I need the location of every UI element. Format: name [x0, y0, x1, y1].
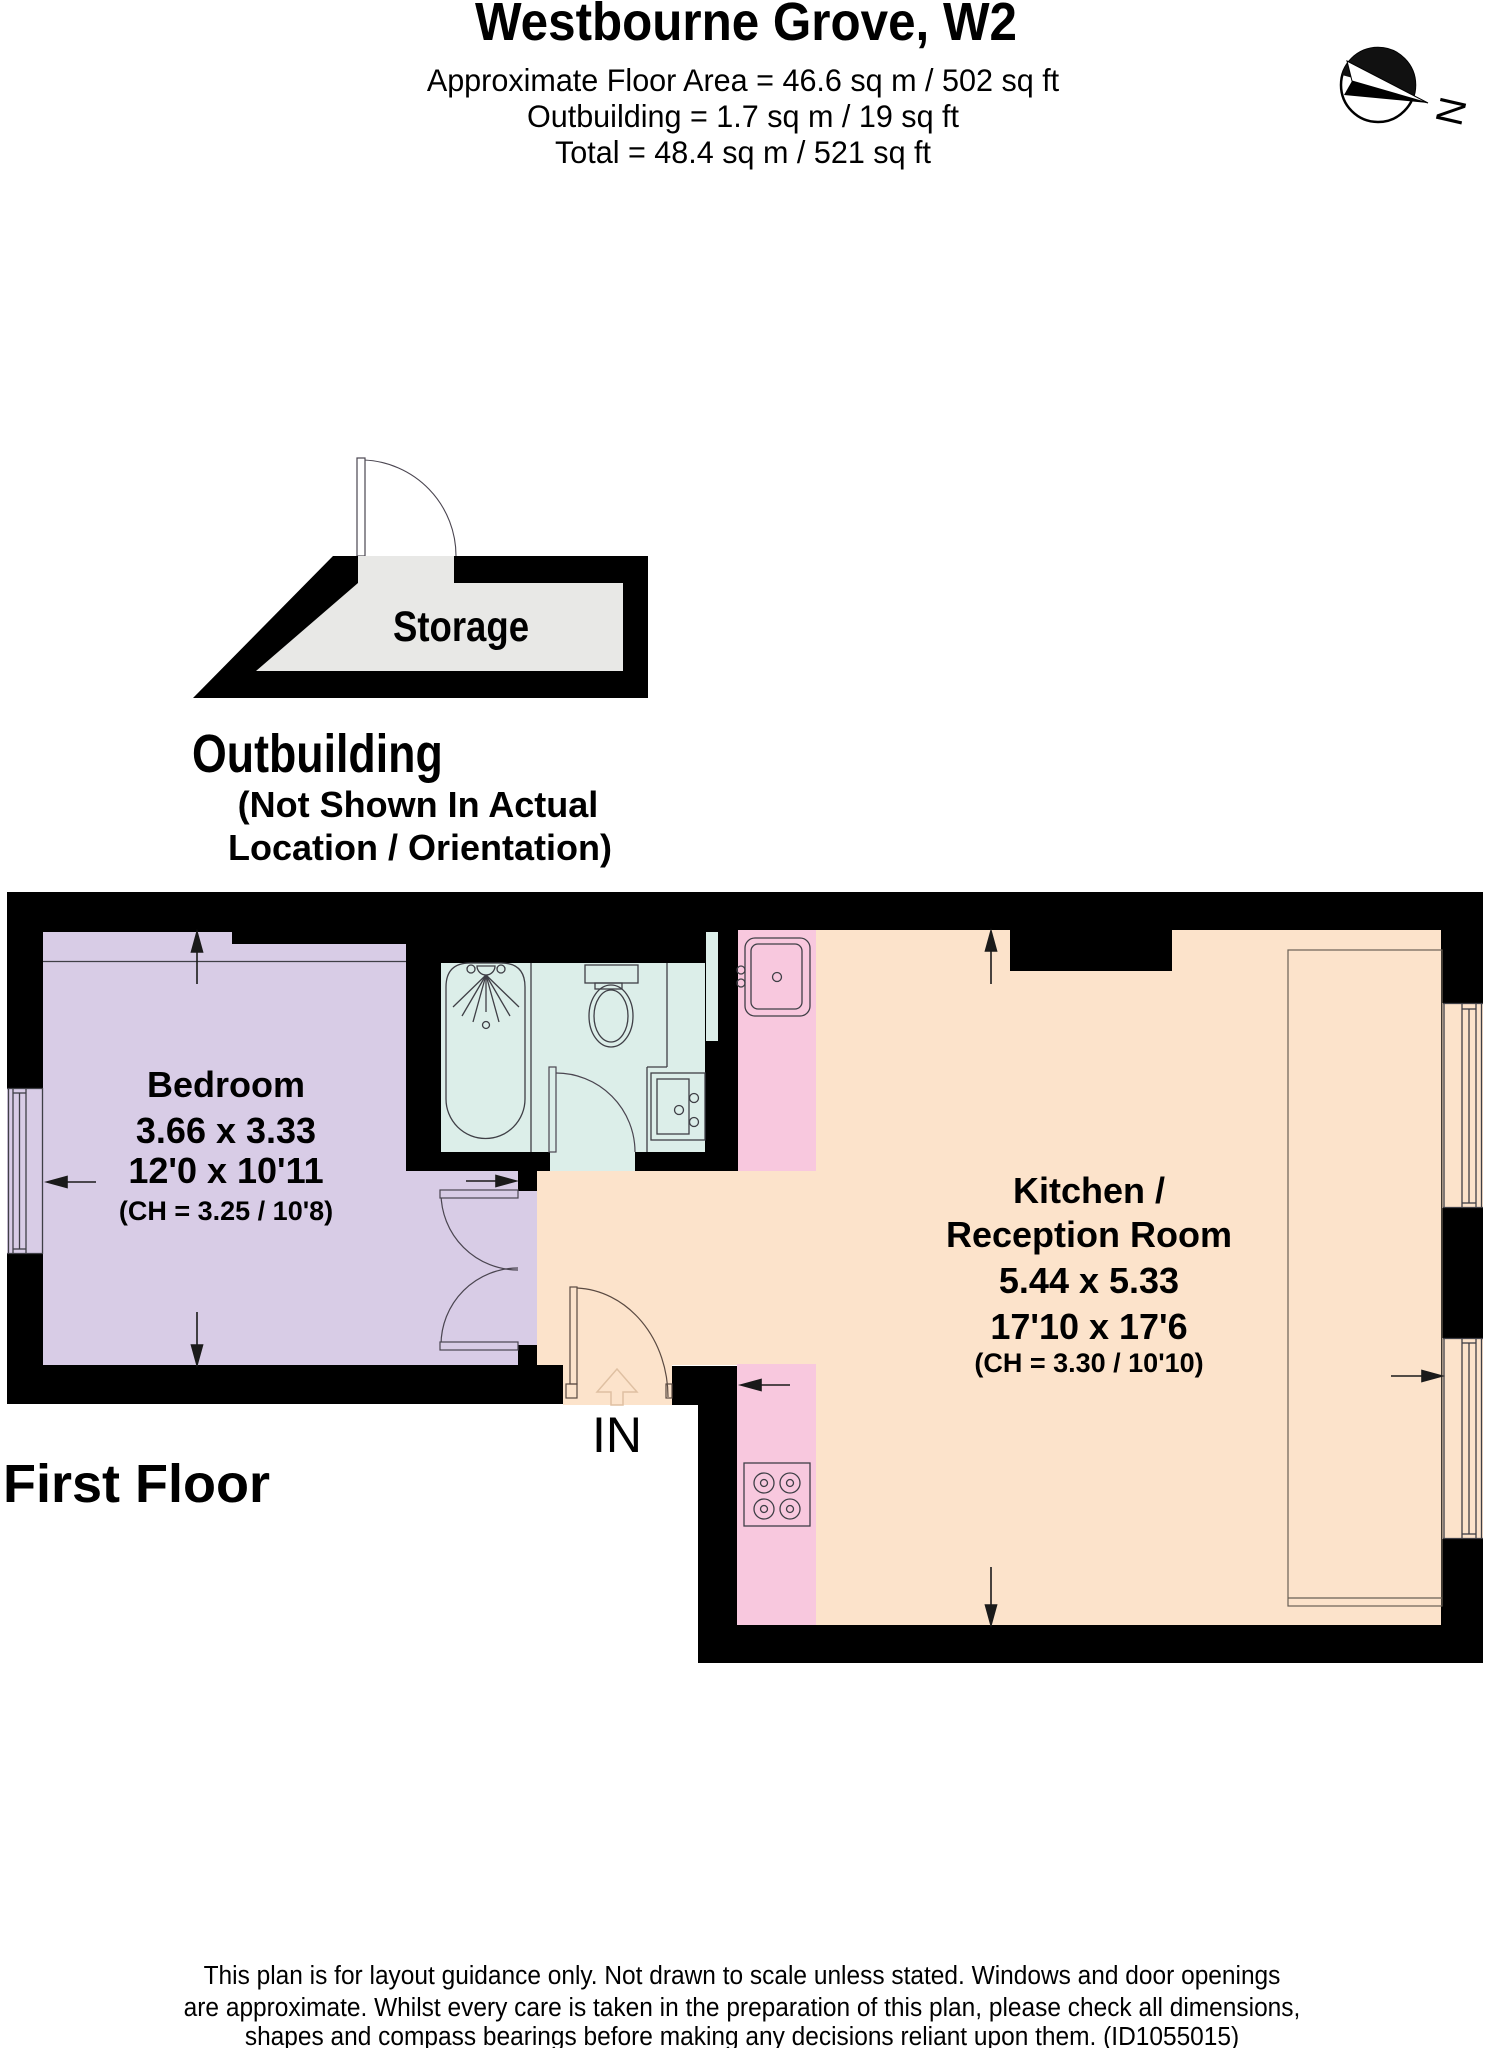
- svg-text:(CH = 3.25 / 10'8): (CH = 3.25 / 10'8): [119, 1196, 333, 1226]
- svg-text:Outbuilding: Outbuilding: [192, 723, 443, 784]
- svg-text:12'0 x 10'11: 12'0 x 10'11: [128, 1150, 323, 1191]
- svg-text:are approximate. Whilst every: are approximate. Whilst every care is ta…: [184, 1994, 1301, 2023]
- svg-text:shapes and compass bearings be: shapes and compass bearings before makin…: [245, 2023, 1239, 2048]
- svg-text:Outbuilding = 1.7 sq m / 19 sq: Outbuilding = 1.7 sq m / 19 sq ft: [527, 99, 959, 135]
- svg-text:Reception Room: Reception Room: [946, 1214, 1232, 1255]
- svg-text:Bedroom: Bedroom: [147, 1064, 305, 1105]
- svg-text:(Not Shown In Actual: (Not Shown In Actual: [238, 784, 599, 825]
- svg-text:Storage: Storage: [393, 603, 529, 650]
- svg-text:5.44 x 5.33: 5.44 x 5.33: [999, 1260, 1179, 1301]
- svg-text:Kitchen /: Kitchen /: [1013, 1170, 1165, 1211]
- svg-text:First Floor: First Floor: [3, 1454, 270, 1514]
- svg-text:(CH = 3.30 / 10'10): (CH = 3.30 / 10'10): [974, 1348, 1203, 1378]
- svg-text:This plan is for layout guidan: This plan is for layout guidance only. N…: [204, 1962, 1281, 1991]
- svg-text:IN: IN: [592, 1407, 642, 1463]
- svg-text:Location / Orientation): Location / Orientation): [228, 827, 612, 868]
- svg-text:Total = 48.4 sq m / 521 sq ft: Total = 48.4 sq m / 521 sq ft: [555, 135, 931, 171]
- svg-text:17'10 x 17'6: 17'10 x 17'6: [990, 1306, 1187, 1347]
- svg-text:Approximate Floor Area = 46.6: Approximate Floor Area = 46.6 sq m / 502…: [427, 63, 1060, 99]
- svg-text:Westbourne Grove, W2: Westbourne Grove, W2: [475, 0, 1017, 51]
- svg-text:3.66 x 3.33: 3.66 x 3.33: [136, 1110, 316, 1151]
